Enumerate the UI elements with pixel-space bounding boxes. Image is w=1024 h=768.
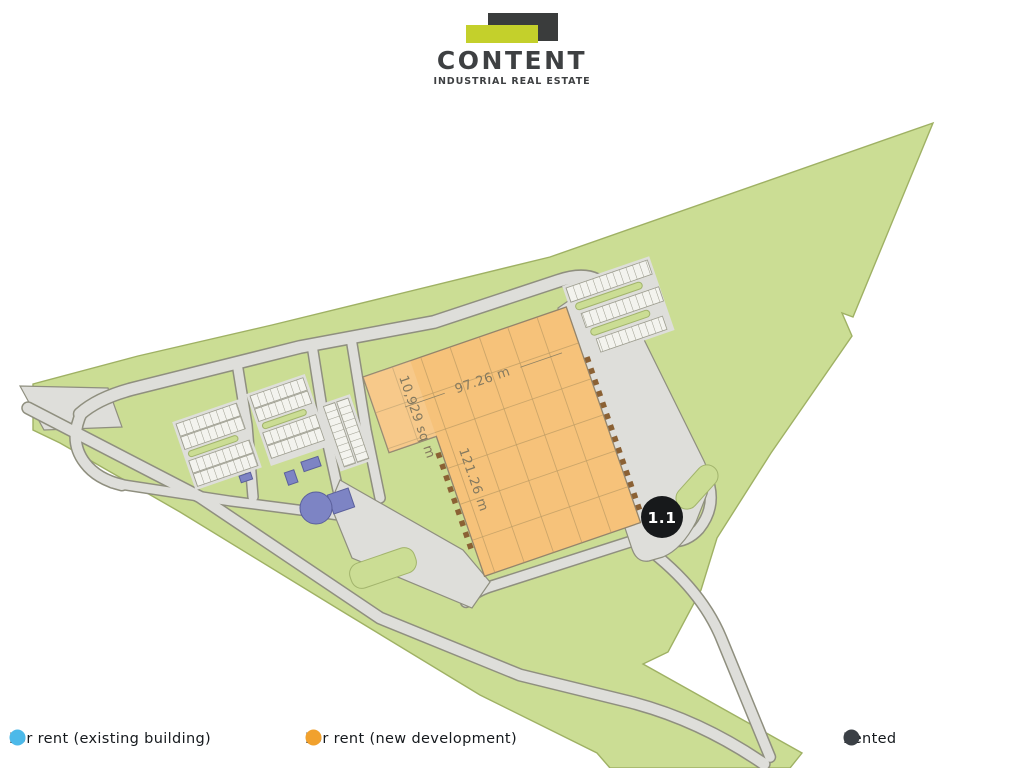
water-tank-icon bbox=[300, 492, 332, 524]
logo-mark-icon bbox=[466, 13, 558, 43]
legend-item-for-rent-existing: For rent (existing building) bbox=[9, 729, 211, 748]
for-rent-existing-dot-icon bbox=[9, 729, 26, 746]
legend-item-for-rent-new: For rent (new development) bbox=[305, 729, 517, 748]
company-logo: CONTENT INDUSTRIAL REAL ESTATE bbox=[0, 13, 1024, 87]
unit-badge[interactable]: 1.1 bbox=[641, 496, 683, 538]
unit-badge-label: 1.1 bbox=[648, 509, 677, 527]
site-plan-page: 97.26 m 10,929 sq m 121.26 m 1.1 CONTENT… bbox=[0, 0, 1024, 768]
legend-item-rented: Rented bbox=[843, 729, 896, 748]
legend-label: For rent (new development) bbox=[305, 731, 517, 747]
legend-label: For rent (existing building) bbox=[9, 731, 211, 747]
for-rent-new-dot-icon bbox=[305, 729, 322, 746]
logo-tagline: INDUSTRIAL REAL ESTATE bbox=[0, 76, 1024, 87]
logo-title: CONTENT bbox=[0, 46, 1024, 75]
site-plan-map: 97.26 m 10,929 sq m 121.26 m 1.1 bbox=[0, 0, 1024, 768]
rented-dot-icon bbox=[843, 729, 860, 746]
